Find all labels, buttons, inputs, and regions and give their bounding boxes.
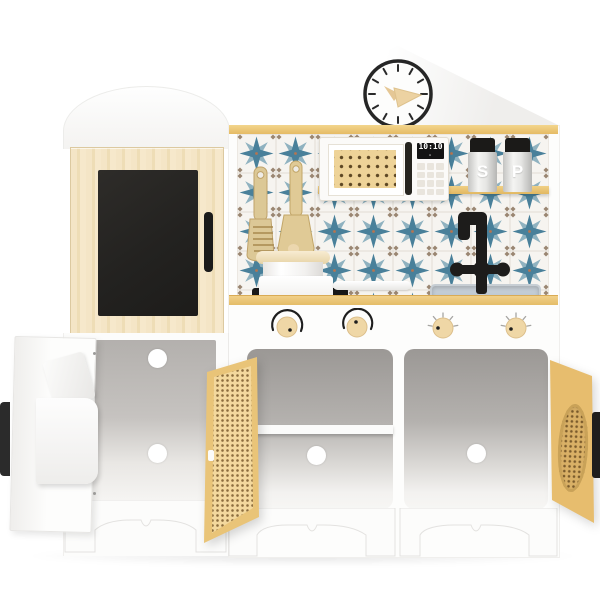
clock-face <box>360 56 436 132</box>
keypad-button <box>436 189 444 196</box>
keypad-button <box>417 180 425 187</box>
top-wood-trim <box>229 125 558 134</box>
fridge-door-handle <box>204 212 213 272</box>
microwave-display-subtext: ▬ <box>429 151 432 159</box>
freezer-interior <box>86 340 216 502</box>
vent-hole <box>307 446 326 465</box>
chalkboard-panel <box>98 170 198 316</box>
salt-shaker: S <box>468 138 497 192</box>
pepper-shaker: P <box>503 138 532 192</box>
vent-hole <box>148 444 167 463</box>
stove-knob-3 <box>424 309 462 347</box>
microwave-mesh <box>334 150 396 188</box>
stove-knob-2 <box>338 308 376 346</box>
microwave-display: 10:10 ▬ <box>417 143 444 159</box>
keypad-button <box>436 180 444 187</box>
vent-hole <box>467 444 486 463</box>
toy-kitchen-scene: 10:10 ▬ S P <box>0 0 600 600</box>
microwave-handle <box>405 142 412 195</box>
hinge-screw <box>93 352 96 355</box>
keypad-button <box>427 180 435 187</box>
keypad-button <box>436 172 444 179</box>
keypad-button <box>417 163 425 170</box>
faucet <box>448 204 512 300</box>
microwave-keypad <box>417 163 444 195</box>
shaker-body: P <box>503 152 532 192</box>
keypad-button <box>436 163 444 170</box>
ice-dispenser-box <box>36 398 98 484</box>
vent-hole <box>148 349 167 368</box>
shaker-cap <box>505 138 530 153</box>
microwave: 10:10 ▬ <box>319 137 449 201</box>
freezer-door-handle <box>0 402 10 476</box>
hanging-utensils <box>240 155 320 265</box>
shaker-body: S <box>468 152 497 192</box>
microwave-time: 10:10 <box>418 143 442 151</box>
keypad-button <box>417 172 425 179</box>
fridge-top-panel <box>63 86 230 149</box>
pepper-label: P <box>512 162 523 182</box>
cabinet-opening-right <box>404 349 548 509</box>
keypad-button <box>427 163 435 170</box>
slotted-spatula <box>247 167 274 261</box>
stove-knob-1 <box>268 308 306 346</box>
microwave-door <box>328 144 404 196</box>
salt-label: S <box>477 162 488 182</box>
door-latch <box>208 450 214 461</box>
spatula <box>278 161 314 258</box>
keypad-button <box>427 189 435 196</box>
hinge-screw <box>93 492 96 495</box>
stove-knob-4 <box>497 309 535 347</box>
keypad-button <box>427 172 435 179</box>
rattan-door-open <box>200 348 278 553</box>
saucepan-handle <box>333 281 411 290</box>
oven-door-handle <box>592 412 600 478</box>
keypad-button <box>417 189 425 196</box>
shaker-cap <box>470 138 495 153</box>
